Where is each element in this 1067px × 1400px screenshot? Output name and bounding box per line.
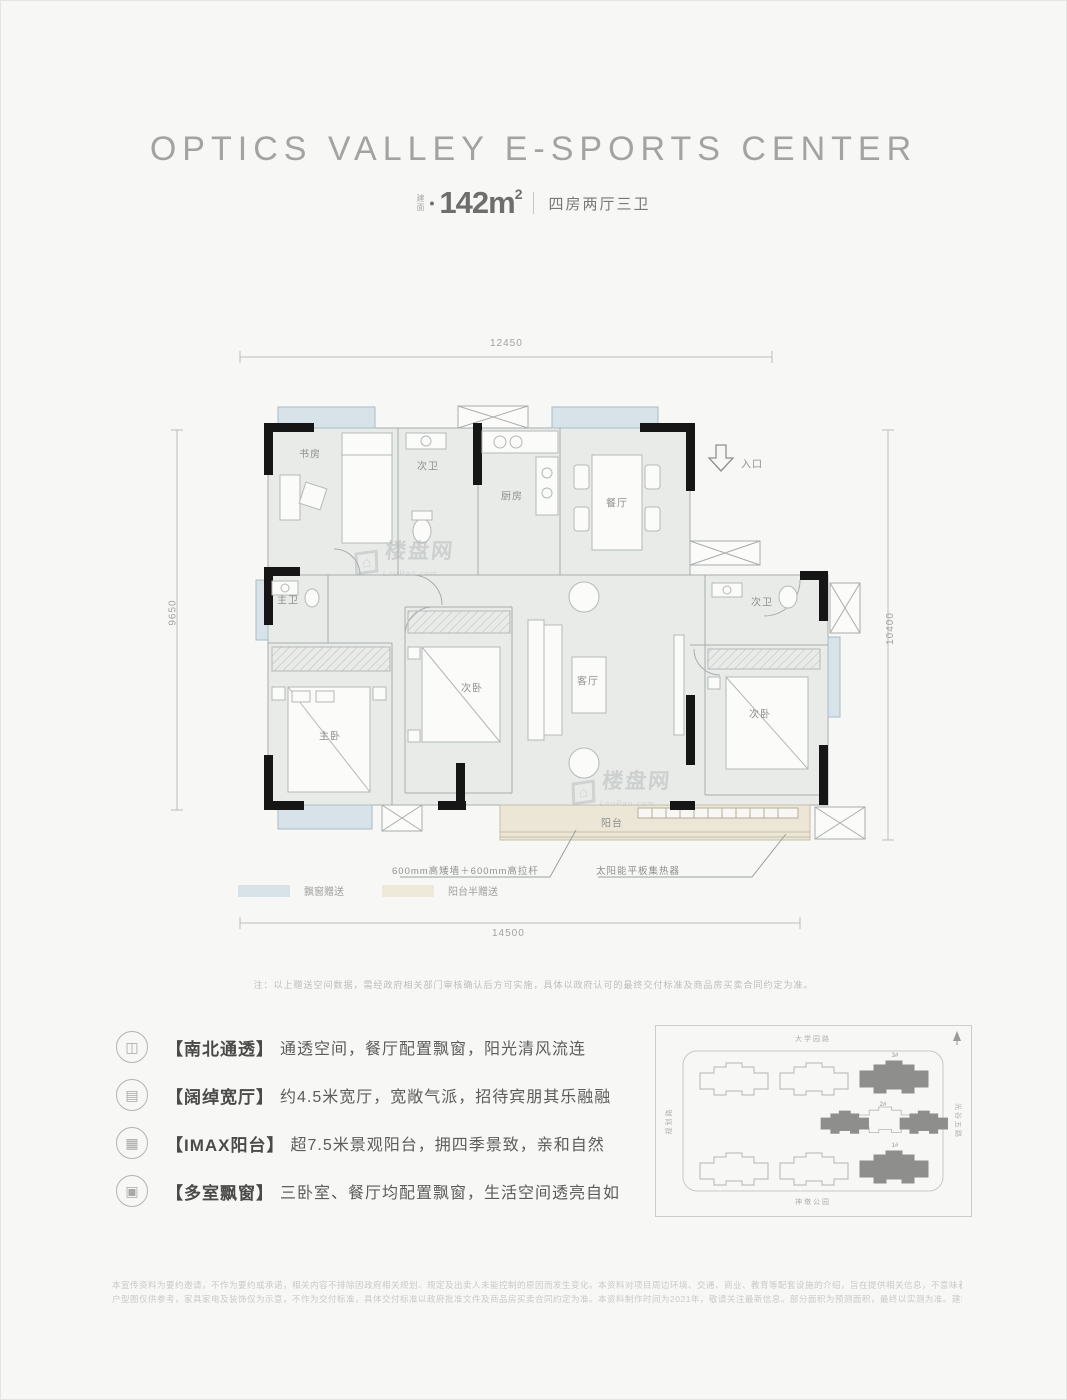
- room-label-entrance: 入口: [741, 456, 763, 471]
- bullet-dot: •: [429, 195, 434, 211]
- room-label-balcony: 阳台: [601, 815, 623, 830]
- imax-balcony-icon: ▦: [116, 1127, 148, 1159]
- wide-living-hall-icon: ▤: [116, 1079, 148, 1111]
- feature-tag: 【IMAX阳台】: [166, 1131, 285, 1156]
- feature-row-imaxbalcony: ▦ 【IMAX阳台】 超7.5米景观阳台，拥四季景致，亲和自然: [116, 1126, 656, 1160]
- multi-bay-window-icon: ▣: [116, 1175, 148, 1207]
- tv-cabinet: [674, 635, 684, 735]
- feature-row-baywindows: ▣ 【多室飘窗】 三卧室、餐厅均配置飘窗，生活空间透亮自如: [116, 1174, 656, 1208]
- area-tag: 建 面: [416, 194, 424, 212]
- bedroom3-wardrobe: [708, 649, 820, 669]
- room-label-bath2: 次卫: [417, 458, 439, 473]
- road-label-top: 大学园路: [795, 1034, 831, 1044]
- watermark: ⌂ 楼盘网 LouPan.com: [353, 543, 455, 581]
- road-label-right: 光谷五路: [953, 1103, 963, 1139]
- dimension-right: 10400: [885, 612, 896, 645]
- bath2-vanity: [406, 433, 446, 449]
- disclaimer-line2: 户型图仅供参考，家具家电及装饰仅为示意，不作为交付标准，具体交付标准以政府批准文…: [112, 1292, 962, 1306]
- room-label-bedroom2: 次卧: [461, 680, 483, 695]
- area-value: 142m2: [439, 185, 521, 221]
- page-root: OPTICS VALLEY E-SPORTS CENTER 建 面 • 142m…: [0, 0, 1067, 1400]
- room-label-bedroom3: 次卧: [749, 706, 771, 721]
- feature-desc: 三卧室、餐厅均配置飘窗，生活空间透亮自如: [280, 1179, 620, 1203]
- room-label-bath3: 次卫: [751, 594, 773, 609]
- masterbath-toilet: [305, 589, 319, 607]
- feature-tag: 【南北通透】: [166, 1035, 274, 1060]
- annotation-solar: 太阳能平板集热器: [596, 863, 680, 877]
- feature-desc: 约4.5米宽厅，宽敞气派，招待宾朋其乐融融: [280, 1083, 611, 1107]
- plan-note: 注：以上赠送空间数据，需经政府相关部门审核确认后方可实施，具体以政府认可的最终交…: [0, 978, 1067, 991]
- floorplan: 12450 9650 10400 14500 书房 次卫 厨房 餐厅 入口 主卫…: [160, 335, 905, 1015]
- disclaimer: 本宣传资料为要约邀请，不作为要约或承诺，相关内容不排除因政府相关规划、规定及出卖…: [112, 1278, 962, 1306]
- feature-desc: 通透空间，餐厅配置飘窗，阳光清风流连: [280, 1035, 586, 1059]
- feature-row-widehall: ▤ 【阔绰宽厅】 约4.5米宽厅，宽敞气派，招待宾朋其乐融融: [116, 1078, 656, 1112]
- master-wardrobe: [272, 647, 390, 671]
- dimension-left: 9650: [168, 599, 179, 625]
- building-label: 2#: [880, 1102, 887, 1108]
- kitchen-counter: [482, 431, 558, 453]
- layout-text: 四房两厅三卫: [548, 193, 650, 214]
- feature-desc: 超7.5米景观阳台，拥四季景致，亲和自然: [291, 1131, 605, 1155]
- area-subtitle: 建 面 • 142m2 四房两厅三卫: [0, 185, 1067, 221]
- study-desk: [280, 475, 300, 520]
- area-number: 142m: [439, 185, 514, 220]
- feature-row-ventilation: ◫ 【南北通透】 通透空间，餐厅配置飘窗，阳光清风流连: [116, 1030, 656, 1064]
- room-label-living: 客厅: [577, 673, 599, 688]
- dimension-top: 12450: [490, 338, 523, 349]
- dimension-bottom: 14500: [492, 928, 525, 939]
- legend-swatch-baywindow: [238, 885, 290, 897]
- feature-tag: 【多室飘窗】: [166, 1179, 274, 1204]
- sofa-seat: [544, 625, 562, 735]
- annotation-parapet: 600mm高矮墙＋600mm高拉杆: [392, 863, 539, 877]
- north-south-ventilation-icon: ◫: [116, 1031, 148, 1063]
- page-title: OPTICS VALLEY E-SPORTS CENTER: [0, 130, 1067, 169]
- watermark: ⌂ 楼盘网 LouPan.com: [570, 773, 672, 811]
- room-label-kitchen: 厨房: [501, 488, 523, 503]
- watermark-subtext: LouPan.com: [382, 569, 438, 578]
- legend-label-balcony: 阳台半赠送: [448, 883, 498, 898]
- legend-swatch-balcony: [382, 885, 434, 897]
- disclaimer-line1: 本宣传资料为要约邀请，不作为要约或承诺，相关内容不排除因政府相关规划、规定及出卖…: [112, 1278, 962, 1292]
- entrance-arrow-icon: [709, 445, 733, 471]
- features-list: ◫ 【南北通透】 通透空间，餐厅配置飘窗，阳光清风流连 ▤ 【阔绰宽厅】 约4.…: [116, 1030, 656, 1222]
- road-label-bottom: 神墩公园: [795, 1197, 831, 1207]
- bath3-toilet: [779, 586, 797, 608]
- bedroom2-wardrobe: [408, 611, 510, 633]
- building-label: 3#: [892, 1053, 899, 1059]
- plan-legend: 飘窗赠送 阳台半赠送: [238, 883, 498, 898]
- room-label-masterbed: 主卧: [319, 728, 341, 743]
- watermark-name: 楼盘网: [601, 770, 672, 793]
- header: OPTICS VALLEY E-SPORTS CENTER 建 面 • 142m…: [0, 130, 1067, 221]
- feature-tag: 【阔绰宽厅】: [166, 1083, 274, 1108]
- building-label: 1#: [892, 1143, 899, 1149]
- watermark-logo-icon: ⌂: [355, 549, 379, 575]
- area-tag-bottom: 面: [416, 203, 424, 212]
- subtitle-divider: [533, 192, 534, 214]
- legend-label-baywindow: 飘窗赠送: [304, 883, 344, 898]
- siteplan-drawing: [655, 1025, 972, 1217]
- area-superscript: 2: [515, 186, 522, 202]
- compass-icon: [953, 1031, 961, 1045]
- room-label-masterbath: 主卫: [277, 592, 299, 607]
- room-label-dining: 餐厅: [606, 495, 628, 510]
- siteplan: 大学园路 神墩公园 规划路 光谷五路 3# 2# 1#: [655, 1025, 972, 1217]
- room-label-study: 书房: [299, 446, 321, 461]
- watermark-subtext: LouPan.com: [599, 799, 655, 808]
- watermark-name: 楼盘网: [384, 540, 455, 563]
- study-bed: [342, 433, 392, 543]
- road-label-left: 规划路: [664, 1108, 674, 1135]
- bath3-vanity: [712, 583, 742, 597]
- sofa-back: [528, 620, 544, 740]
- area-tag-top: 建: [416, 194, 424, 203]
- floorplan-drawing: [160, 335, 905, 1015]
- armchair-top: [569, 582, 599, 612]
- watermark-logo-icon: ⌂: [572, 779, 596, 805]
